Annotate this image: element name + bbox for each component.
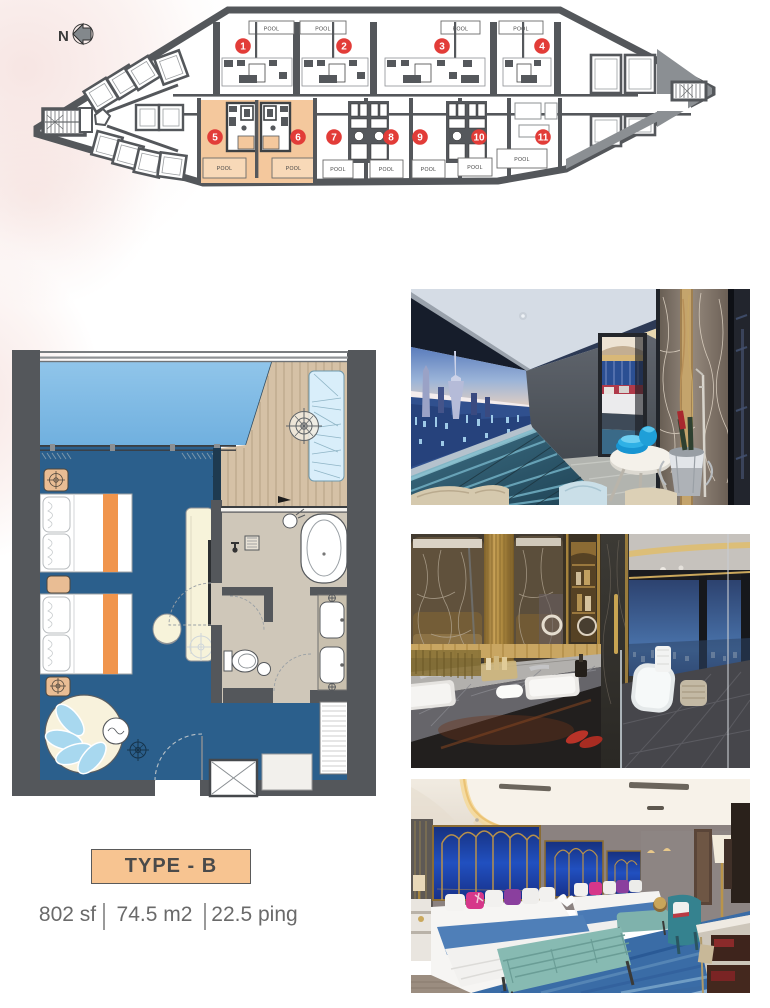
- svg-text:3: 3: [439, 42, 445, 53]
- svg-text:POOL: POOL: [513, 27, 529, 33]
- svg-text:1: 1: [240, 42, 246, 53]
- svg-text:7: 7: [331, 133, 337, 144]
- svg-text:POOL: POOL: [315, 27, 331, 33]
- svg-text:8: 8: [388, 133, 394, 144]
- svg-text:POOL: POOL: [379, 167, 395, 173]
- svg-text:POOL: POOL: [330, 167, 346, 173]
- svg-text:10: 10: [473, 133, 485, 144]
- svg-text:POOL: POOL: [264, 27, 280, 33]
- svg-text:POOL: POOL: [514, 157, 530, 163]
- svg-text:11: 11: [538, 133, 549, 144]
- svg-text:POOL: POOL: [467, 165, 483, 171]
- svg-text:POOL: POOL: [286, 166, 302, 172]
- svg-text:9: 9: [417, 133, 423, 144]
- svg-text:4: 4: [539, 42, 545, 53]
- svg-text:5: 5: [212, 133, 218, 144]
- svg-text:6: 6: [295, 133, 301, 144]
- svg-text:POOL: POOL: [217, 166, 233, 172]
- svg-text:2: 2: [341, 42, 347, 53]
- svg-text:POOL: POOL: [421, 167, 437, 173]
